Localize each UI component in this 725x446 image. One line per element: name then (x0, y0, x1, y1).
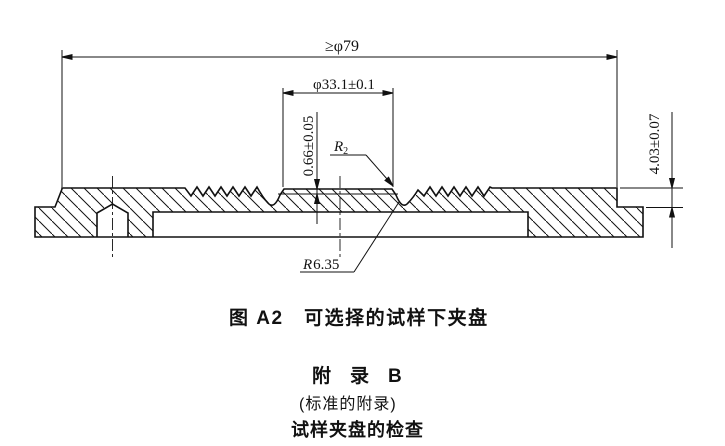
arrowhead (670, 179, 675, 189)
scanned-standard-page: ≥φ79 φ33.1±0.1 0.66±0.05 4.03±0.07 (0, 0, 725, 446)
dim-overall-diameter: ≥φ79 (62, 38, 617, 187)
r2-text: R2 (333, 139, 348, 157)
dim-plateau-label: φ33.1±0.1 (313, 77, 375, 93)
dim-step-label: 0.66±0.05 (301, 116, 317, 177)
disc-cross-section (35, 187, 643, 237)
label-radius-r2: R2 (330, 139, 393, 186)
arrowhead (383, 91, 393, 96)
dim-plateau-diameter: φ33.1±0.1 (283, 77, 393, 187)
figure-caption: 图 A2 可选择的试样下夹盘 (229, 303, 489, 330)
arrowhead (283, 91, 293, 96)
appendix-heading: 试样夹盘的检查 (291, 416, 424, 442)
appendix-note: (标准的附录) (299, 390, 397, 414)
arrowhead (670, 208, 675, 218)
arrowhead (607, 55, 617, 60)
dim-thickness-label: 4.03±0.07 (647, 113, 663, 174)
dim-overall-label: ≥φ79 (325, 38, 359, 55)
appendix-title: 附 录 B (312, 361, 402, 388)
r635-text: R6.35 (302, 257, 339, 273)
arrowhead (62, 55, 72, 60)
arrowhead (315, 180, 320, 190)
